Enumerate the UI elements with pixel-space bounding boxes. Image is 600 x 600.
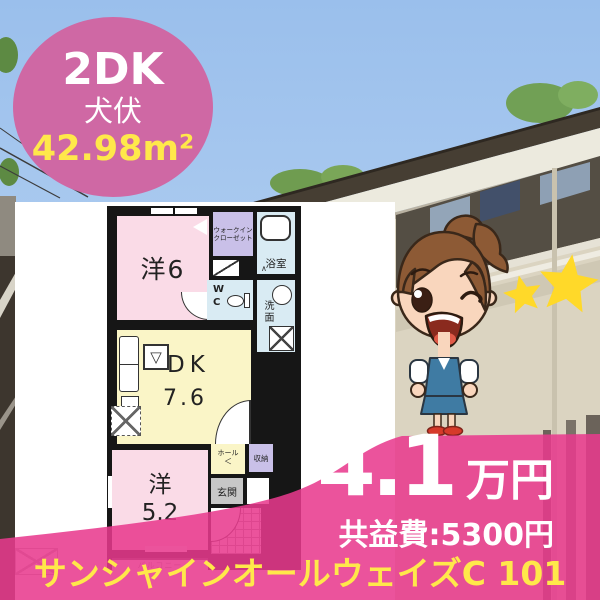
rent-value: 4.1 (317, 424, 454, 508)
property-name: サンシャインオールウェイズC 101 (0, 547, 600, 595)
rental-listing-image: 2DK 犬伏 42.98m² 洋6 ウォークイン クローゼット ∧ 浴室 W (0, 0, 600, 600)
rent-unit: 万円 (466, 444, 554, 508)
price-block: 4.1 万円 共益費:5300円 (317, 424, 554, 554)
